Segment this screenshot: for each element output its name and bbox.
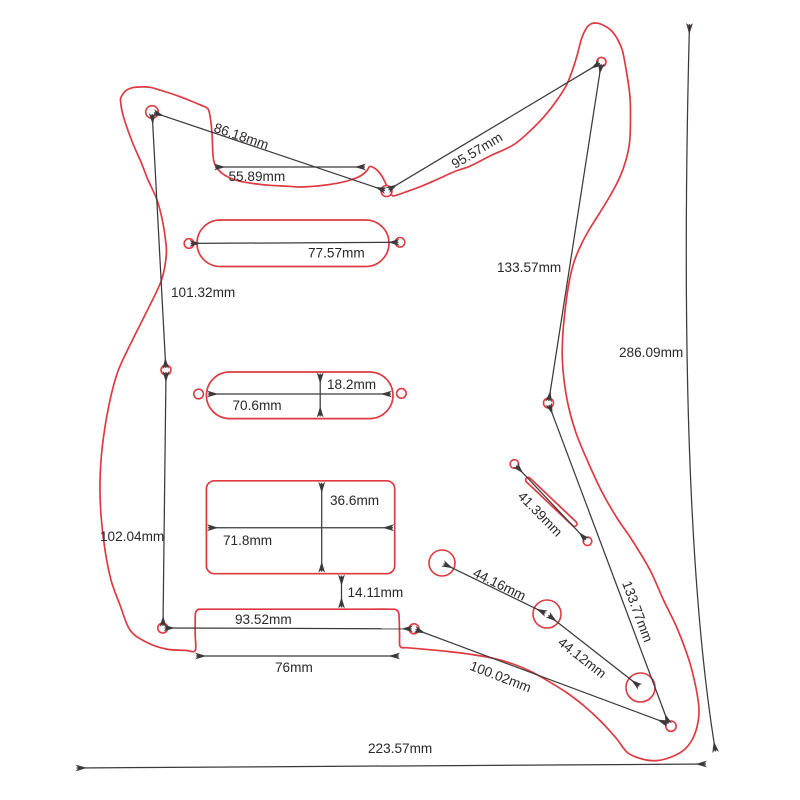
svg-text:41.39mm: 41.39mm: [515, 489, 565, 540]
svg-text:71.8mm: 71.8mm: [223, 533, 272, 548]
svg-text:100.02mm: 100.02mm: [468, 658, 533, 695]
svg-text:55.89mm: 55.89mm: [229, 169, 286, 184]
svg-text:70.6mm: 70.6mm: [233, 398, 282, 413]
svg-text:133.77mm: 133.77mm: [619, 579, 656, 644]
svg-text:14.11mm: 14.11mm: [348, 585, 404, 600]
svg-text:286.09mm: 286.09mm: [619, 345, 683, 360]
svg-text:77.57mm: 77.57mm: [308, 246, 365, 261]
svg-text:223.57mm: 223.57mm: [368, 741, 432, 756]
svg-text:95.57mm: 95.57mm: [449, 130, 505, 172]
svg-text:18.2mm: 18.2mm: [327, 377, 376, 392]
svg-text:93.52mm: 93.52mm: [235, 612, 292, 627]
svg-text:86.18mm: 86.18mm: [212, 120, 270, 152]
svg-text:36.6mm: 36.6mm: [330, 493, 379, 508]
svg-text:44.16mm: 44.16mm: [471, 565, 529, 603]
svg-text:133.57mm: 133.57mm: [497, 260, 561, 275]
svg-text:76mm: 76mm: [275, 660, 313, 675]
svg-text:102.04mm: 102.04mm: [100, 529, 164, 544]
svg-text:101.32mm: 101.32mm: [171, 285, 235, 300]
